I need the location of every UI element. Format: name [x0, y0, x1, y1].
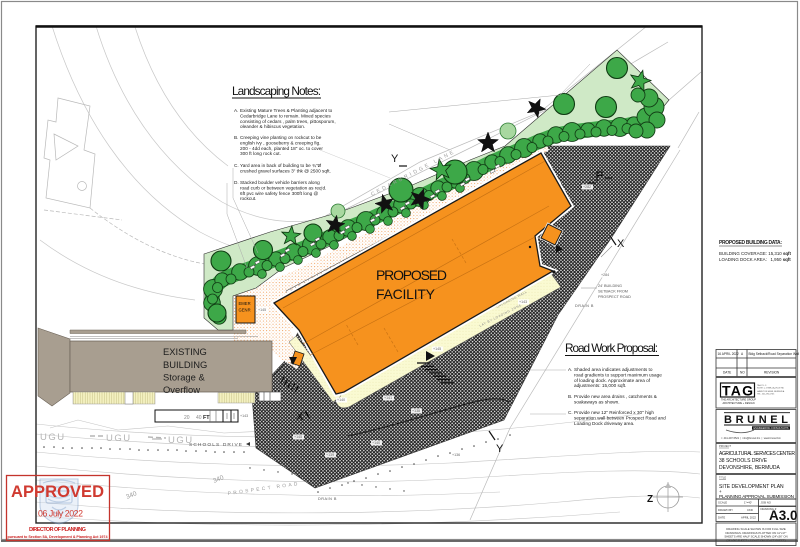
svg-text:FT: FT [203, 415, 210, 421]
svg-text:+140: +140 [372, 441, 380, 445]
svg-text:EMER: EMER [239, 301, 251, 306]
svg-text:oleander & hibiscus vegetation: oleander & hibiscus vegetation. [240, 124, 305, 129]
svg-text:C.: C. [568, 410, 573, 415]
svg-text:24' BUILDING: 24' BUILDING [598, 284, 622, 288]
svg-text:of loading dock. Approximate a: of loading dock. Approximate area of [574, 378, 651, 383]
svg-text:PROSPECT ROAD: PROSPECT ROAD [598, 295, 631, 299]
svg-text:Storage &: Storage & [163, 372, 205, 383]
svg-text:UGU: UGU [40, 432, 66, 443]
svg-text:SITE DEVELOPMENT PLAN: SITE DEVELOPMENT PLAN [719, 484, 784, 490]
svg-text:FACILITY: FACILITY [376, 286, 436, 302]
svg-text:EXISTING: EXISTING [163, 346, 207, 357]
svg-text:PROPOSED: PROPOSED [376, 267, 447, 283]
svg-text:AGRICULTURAL SERVICES CENTER: AGRICULTURAL SERVICES CENTER [719, 451, 795, 457]
svg-text:DATE: DATE [723, 371, 731, 375]
svg-text:separation wall between Prosp: separation wall between Prospect Road an… [574, 415, 666, 420]
svg-text:english ivy , gooseberry & cre: english ivy , gooseberry & creeping fig. [240, 140, 321, 145]
svg-text:LOADING DOCK AREA: 1,950 sqf: LOADING DOCK AREA: 1,950 sqft [719, 257, 791, 262]
svg-text:X: X [296, 411, 304, 423]
svg-text:+138: +138 [412, 409, 420, 413]
svg-text:consisting of cedars , palm tr: consisting of cedars , palm trees, pitto… [240, 119, 336, 124]
svg-text:Provide new 12" Reinforced x 3: Provide new 12" Reinforced x 30" high [574, 410, 654, 415]
svg-text:Overflow: Overflow [163, 384, 200, 395]
svg-text:+145: +145 [294, 435, 302, 439]
svg-text:TEL: 441-292-0765: TEL: 441-292-0765 [757, 394, 775, 396]
svg-text:Shaded area indicates adjustme: Shaded area indicates adjustments to [574, 367, 653, 372]
svg-text:06 July 2022: 06 July 2022 [38, 509, 83, 519]
svg-text:REVISION: REVISION [764, 371, 780, 375]
svg-text:DRAIN B: DRAIN B [575, 304, 594, 308]
svg-text:Yard area in back of building: Yard area in back of building to be ¾"Ø [240, 163, 322, 168]
svg-text:6ft pvc wire safety fence 300f: 6ft pvc wire safety fence 300ft long @ [240, 191, 318, 196]
svg-text:+284: +284 [601, 273, 609, 277]
svg-text:D.: D. [234, 180, 239, 185]
svg-text:+143: +143 [240, 414, 248, 418]
svg-text:APRIL 2022: APRIL 2022 [741, 516, 756, 520]
svg-text:Z: Z [647, 494, 653, 505]
svg-text:+140: +140 [337, 398, 345, 402]
svg-text:Landscaping Notes:: Landscaping Notes: [232, 84, 321, 98]
svg-text:CKD: CKD [747, 508, 753, 512]
svg-text:(24"x36" SHEET + 11"x17" ON 11: (24"x36" SHEET + 11"x17" ON 11"x17" SHEE… [726, 538, 785, 542]
svg-text:+145: +145 [433, 347, 441, 351]
svg-text:PROJECT: PROJECT [719, 444, 732, 448]
svg-text:+143: +143 [519, 300, 527, 304]
svg-text:Loading Dock driveway area.: Loading Dock driveway area. [574, 421, 634, 426]
svg-text:TAG: TAG [722, 383, 753, 399]
svg-text:road gradients to support maxi: road gradients to support maximum usage [574, 372, 662, 377]
svg-text:DIRECTOR OF PLANNING: DIRECTOR OF PLANNING [29, 527, 86, 533]
svg-text:APPROVED: APPROVED [11, 483, 104, 501]
svg-text:300 ft long rock cut.: 300 ft long rock cut. [240, 151, 281, 156]
svg-text:20: 20 [184, 415, 190, 421]
svg-text:BUILDING: BUILDING [163, 359, 207, 370]
svg-text:BUILDING COVERAGE: 15,310 sqft: BUILDING COVERAGE: 15,310 sqft [719, 251, 792, 256]
svg-text:JOB NO: JOB NO [761, 501, 772, 505]
svg-text:SETBACK FROM: SETBACK FROM [598, 290, 628, 294]
svg-text:38 SCHOOLS DRIVE: 38 SCHOOLS DRIVE [719, 458, 768, 464]
svg-text:Bldg Setback/Road Separation W: Bldg Setback/Road Separation Wall [749, 352, 800, 356]
svg-text:rockcut.: rockcut. [240, 196, 256, 201]
svg-text:UGU: UGU [106, 433, 132, 444]
svg-text:GENR: GENR [239, 308, 251, 313]
svg-text:Existing Mature Trees & Planti: Existing Mature Trees & Planting adjacen… [240, 108, 333, 113]
svg-text:Cedarbridge Lane to remain. Mi: Cedarbridge Lane to remain. Mixed specie… [240, 113, 331, 118]
svg-text:+282: +282 [583, 185, 591, 189]
svg-text:Stacked boulder vehicle barrie: Stacked boulder vehicle barriers along [240, 180, 320, 185]
svg-text:Road Work Proposal:: Road Work Proposal: [565, 341, 658, 355]
svg-text:Y: Y [391, 153, 399, 165]
svg-text:NO: NO [740, 371, 745, 375]
svg-text:+136: +136 [452, 453, 460, 457]
svg-text:TITLE: TITLE [719, 476, 726, 480]
svg-text:+139: +139 [326, 453, 334, 457]
svg-text:B.: B. [568, 394, 572, 399]
svg-text:t: 441-297-5521 | info@brune: t: 441-297-5521 | info@brunel.bm | www.b… [722, 437, 781, 440]
svg-text:DEVONSHIRE, BERMUDA: DEVONSHIRE, BERMUDA [719, 465, 781, 471]
svg-text:+145: +145 [258, 308, 266, 312]
svg-text:1"=40': 1"=40' [744, 501, 752, 505]
svg-text:Y: Y [496, 443, 504, 455]
svg-text:road curb or between vegetatio: road curb or between vegetation as req'd… [240, 185, 326, 190]
svg-text:DRAIN B: DRAIN B [318, 497, 337, 501]
svg-text:SCHOOLS DRIVE: SCHOOLS DRIVE [189, 442, 244, 448]
svg-text:crushed gravel surfaces 3" thk: crushed gravel surfaces 3" thk @ 2500 sq… [240, 168, 331, 173]
svg-text:SCALE: SCALE [718, 501, 727, 505]
svg-text:Creeping vine planting on rock: Creeping vine planting on rockcut to be [240, 135, 322, 140]
svg-text:PLANNING APPROVAL SUBMISSION: PLANNING APPROVAL SUBMISSION [719, 494, 794, 499]
svg-text:200 - 4dd each, planted 18" oc: 200 - 4dd each, planted 18" oc. to cover [240, 146, 323, 151]
svg-text:16 APRIL 2022: 16 APRIL 2022 [718, 352, 740, 356]
svg-text:DRAWN BY: DRAWN BY [718, 508, 733, 512]
svg-text:SUITE 1, 4 PAR-LA-VILLE RD: SUITE 1, 4 PAR-LA-VILLE RD [757, 387, 785, 390]
svg-text:pursuant to Section 5A, Develo: pursuant to Section 5A, Development & Pl… [8, 535, 109, 539]
svg-text:C.: C. [234, 163, 239, 168]
svg-text:+141: +141 [384, 396, 392, 400]
svg-text:A.: A. [234, 108, 238, 113]
svg-text:B.: B. [234, 135, 238, 140]
svg-text:A.: A. [568, 367, 572, 372]
svg-text:PROPOSED BUILDING DATA:: PROPOSED BUILDING DATA: [719, 240, 782, 246]
svg-text:40: 40 [196, 415, 202, 421]
svg-text:ENGINEERING CONSULTANTS: ENGINEERING CONSULTANTS [754, 427, 789, 430]
svg-text:X: X [617, 238, 625, 250]
svg-text:adjustments: 15,000 sqft.: adjustments: 15,000 sqft. [574, 383, 626, 388]
svg-text:ARCHITECTURE + DESIGN: ARCHITECTURE + DESIGN [723, 402, 755, 405]
svg-text:Provide new area drains , cat: Provide new area drains , catchments & [574, 394, 658, 399]
svg-text:soakaways as shown.: soakaways as shown. [574, 399, 620, 404]
svg-text:DATE: DATE [718, 516, 725, 520]
svg-text:A3.0: A3.0 [769, 508, 798, 523]
